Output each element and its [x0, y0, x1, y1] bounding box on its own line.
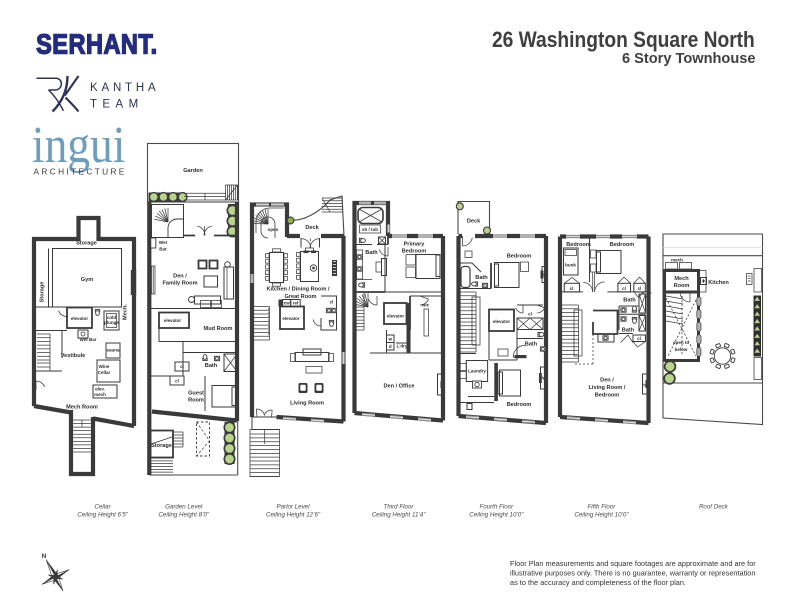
svg-text:open: open — [268, 227, 279, 232]
svg-text:cl: cl — [637, 336, 641, 341]
svg-text:Living Room /: Living Room / — [589, 385, 626, 391]
svg-text:cl: cl — [638, 286, 642, 291]
svg-text:Bedroom: Bedroom — [610, 242, 635, 248]
svg-text:Deck: Deck — [467, 219, 481, 225]
svg-text:Mech: Mech — [674, 276, 689, 282]
svg-text:Ceiling Height 12’6”: Ceiling Height 12’6” — [266, 512, 321, 519]
svg-text:Wet: Wet — [159, 240, 168, 245]
svg-text:mech: mech — [94, 392, 106, 397]
svg-text:open to: open to — [673, 340, 689, 345]
svg-text:cl: cl — [528, 312, 532, 317]
svg-text:elev.: elev. — [95, 387, 105, 392]
svg-text:Cellar: Cellar — [98, 370, 111, 375]
svg-text:elevator: elevator — [164, 318, 182, 323]
svg-text:Mech.: Mech. — [123, 304, 129, 320]
svg-text:Laundry: Laundry — [468, 369, 486, 374]
svg-text:KANTHA: KANTHA — [90, 82, 159, 94]
svg-text:Storage: Storage — [40, 282, 46, 303]
svg-text:sauna: sauna — [106, 348, 120, 353]
svg-text:plunge: plunge — [104, 320, 119, 325]
svg-text:Deck: Deck — [305, 225, 319, 231]
svg-text:Living Room: Living Room — [290, 401, 324, 407]
svg-text:Room: Room — [188, 398, 204, 404]
svg-text:cl: cl — [622, 286, 626, 291]
svg-text:sh / tub: sh / tub — [362, 227, 378, 232]
svg-text:Ceiling Height 6’5”: Ceiling Height 6’5” — [77, 512, 128, 519]
svg-text:ARCHITECTURE: ARCHITECTURE — [34, 167, 127, 177]
svg-text:Garden: Garden — [183, 168, 203, 174]
svg-text:Garden Level: Garden Level — [165, 504, 203, 511]
svg-text:Den / Office: Den / Office — [383, 384, 414, 390]
svg-text:Bath: Bath — [623, 298, 636, 304]
svg-text:Ceiling Height 8’0”: Ceiling Height 8’0” — [158, 512, 209, 519]
svg-text:SERHANT.: SERHANT. — [36, 30, 158, 60]
svg-text:Ceiling Height 11’4”: Ceiling Height 11’4” — [372, 512, 426, 519]
svg-text:mech: mech — [671, 258, 683, 263]
svg-text:Mech Room: Mech Room — [66, 405, 98, 411]
svg-text:Wine: Wine — [99, 364, 110, 369]
svg-text:Gym: Gym — [81, 277, 93, 283]
svg-text:Family Room: Family Room — [162, 281, 197, 287]
svg-text:Fifth Floor: Fifth Floor — [587, 504, 616, 511]
svg-text:elevator: elevator — [282, 316, 300, 321]
svg-text:Storage: Storage — [151, 443, 172, 449]
svg-text:Fourth Floor: Fourth Floor — [479, 504, 514, 511]
svg-text:Parlor Level: Parlor Level — [276, 504, 310, 511]
svg-text:ingui: ingui — [32, 115, 126, 174]
svg-text:as to the accuracy and complet: as to the accuracy and completeness of t… — [510, 578, 686, 587]
svg-text:d: d — [389, 344, 392, 349]
svg-text:Room: Room — [674, 283, 690, 289]
svg-text:Bedroom: Bedroom — [507, 402, 532, 408]
svg-text:Primary: Primary — [404, 242, 426, 248]
svg-text:Bath: Bath — [365, 250, 378, 256]
svg-text:Bath: Bath — [475, 275, 488, 281]
svg-text:below: below — [675, 347, 688, 352]
svg-text:L'dry: L'dry — [397, 344, 408, 349]
svg-text:Den /: Den / — [600, 378, 614, 384]
svg-text:elevator: elevator — [71, 316, 89, 321]
svg-text:N: N — [42, 553, 47, 560]
svg-text:w: w — [387, 337, 392, 342]
svg-text:elevator: elevator — [493, 319, 511, 324]
svg-text:Den /: Den / — [173, 274, 187, 280]
svg-text:Bedroom: Bedroom — [507, 254, 532, 260]
svg-text:Floor Plan measurements and sq: Floor Plan measurements and square foota… — [510, 559, 756, 568]
svg-text:TEAM: TEAM — [90, 99, 144, 111]
svg-text:Vestibule: Vestibule — [61, 353, 86, 359]
svg-text:illustrative purposes only. Th: illustrative purposes only. There is no … — [510, 569, 755, 578]
svg-text:Bedroom: Bedroom — [402, 248, 427, 254]
svg-text:cl: cl — [180, 364, 184, 369]
svg-text:Kitchen / Dining Room /: Kitchen / Dining Room / — [266, 287, 330, 293]
svg-text:Bath: Bath — [525, 342, 538, 348]
svg-text:bunk: bunk — [565, 263, 576, 268]
svg-text:Ceiling Height 10’0”: Ceiling Height 10’0” — [574, 512, 629, 519]
svg-text:ref: ref — [293, 301, 299, 306]
svg-text:Guest: Guest — [188, 391, 204, 397]
svg-text:Kitchen: Kitchen — [708, 280, 729, 286]
svg-text:Roof Deck: Roof Deck — [699, 504, 729, 511]
svg-text:Third Floor: Third Floor — [384, 504, 415, 511]
svg-text:Storage: Storage — [76, 241, 97, 247]
svg-text:Cellar: Cellar — [95, 504, 112, 511]
svg-text:cw: cw — [284, 301, 291, 306]
svg-text:Bedroom: Bedroom — [566, 242, 591, 248]
svg-text:elevator: elevator — [387, 314, 405, 319]
svg-text:26 Washington Square North: 26 Washington Square North — [492, 27, 755, 52]
svg-text:Mud Room: Mud Room — [204, 326, 233, 332]
svg-text:cl: cl — [330, 300, 334, 305]
svg-text:Bath: Bath — [205, 363, 218, 369]
svg-text:Ceiling Height 10’0”: Ceiling Height 10’0” — [469, 512, 524, 519]
svg-text:Bedroom: Bedroom — [595, 393, 620, 399]
svg-text:Bath: Bath — [622, 328, 635, 334]
svg-text:6 Story Townhouse: 6 Story Townhouse — [622, 51, 756, 67]
svg-text:cl: cl — [175, 379, 179, 384]
svg-text:cl: cl — [570, 286, 574, 291]
svg-text:Bar: Bar — [159, 247, 167, 252]
